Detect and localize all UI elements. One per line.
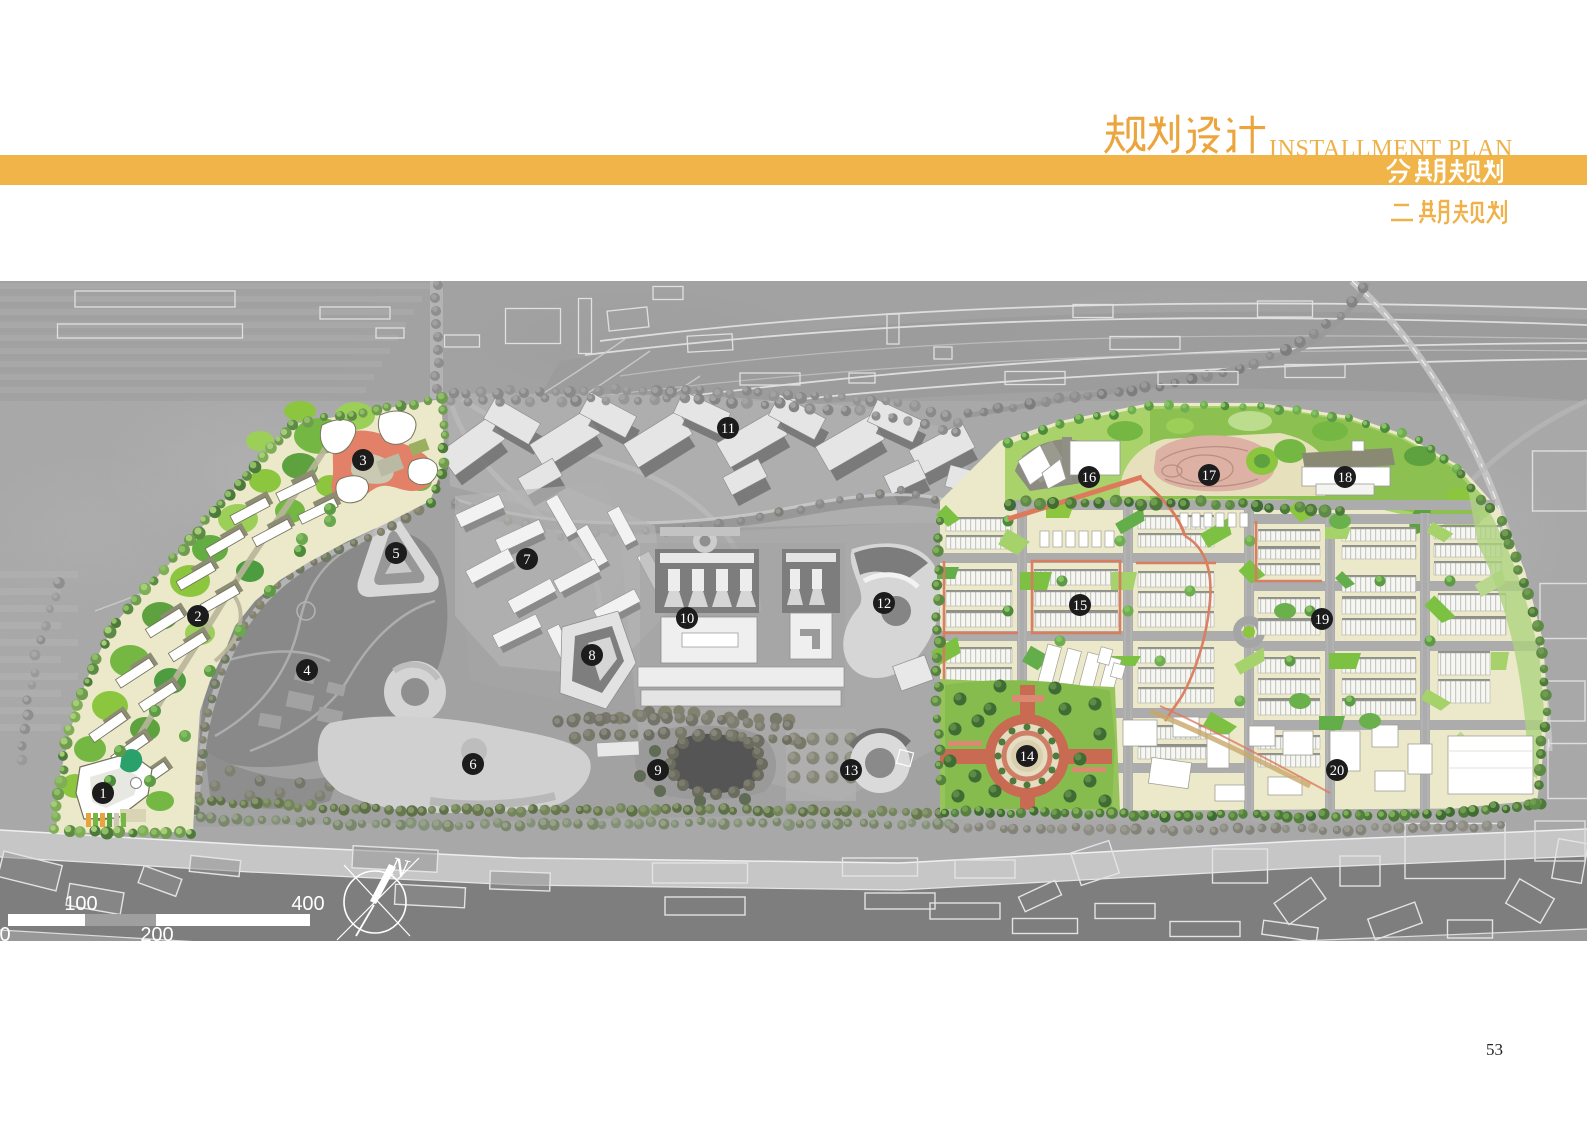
svg-text:7: 7 <box>523 552 530 568</box>
svg-text:11: 11 <box>721 421 735 437</box>
svg-text:19: 19 <box>1315 612 1330 628</box>
svg-text:2: 2 <box>194 609 201 625</box>
svg-text:400: 400 <box>291 893 324 915</box>
svg-text:1: 1 <box>99 786 106 802</box>
svg-text:4: 4 <box>303 663 311 679</box>
svg-text:200: 200 <box>140 924 173 941</box>
svg-text:18: 18 <box>1338 470 1353 486</box>
svg-text:12: 12 <box>877 596 892 612</box>
svg-text:100: 100 <box>64 893 97 915</box>
svg-text:15: 15 <box>1073 598 1088 614</box>
svg-text:6: 6 <box>469 757 476 773</box>
svg-text:10: 10 <box>680 611 695 627</box>
svg-text:20: 20 <box>1330 763 1345 779</box>
svg-text:9: 9 <box>654 763 661 779</box>
svg-text:5: 5 <box>392 546 399 562</box>
svg-text:14: 14 <box>1020 749 1035 765</box>
svg-text:17: 17 <box>1202 468 1217 484</box>
svg-text:13: 13 <box>844 763 859 779</box>
svg-text:3: 3 <box>359 453 366 469</box>
svg-text:8: 8 <box>588 648 595 664</box>
svg-text:0: 0 <box>0 924 11 941</box>
svg-text:16: 16 <box>1082 470 1097 486</box>
